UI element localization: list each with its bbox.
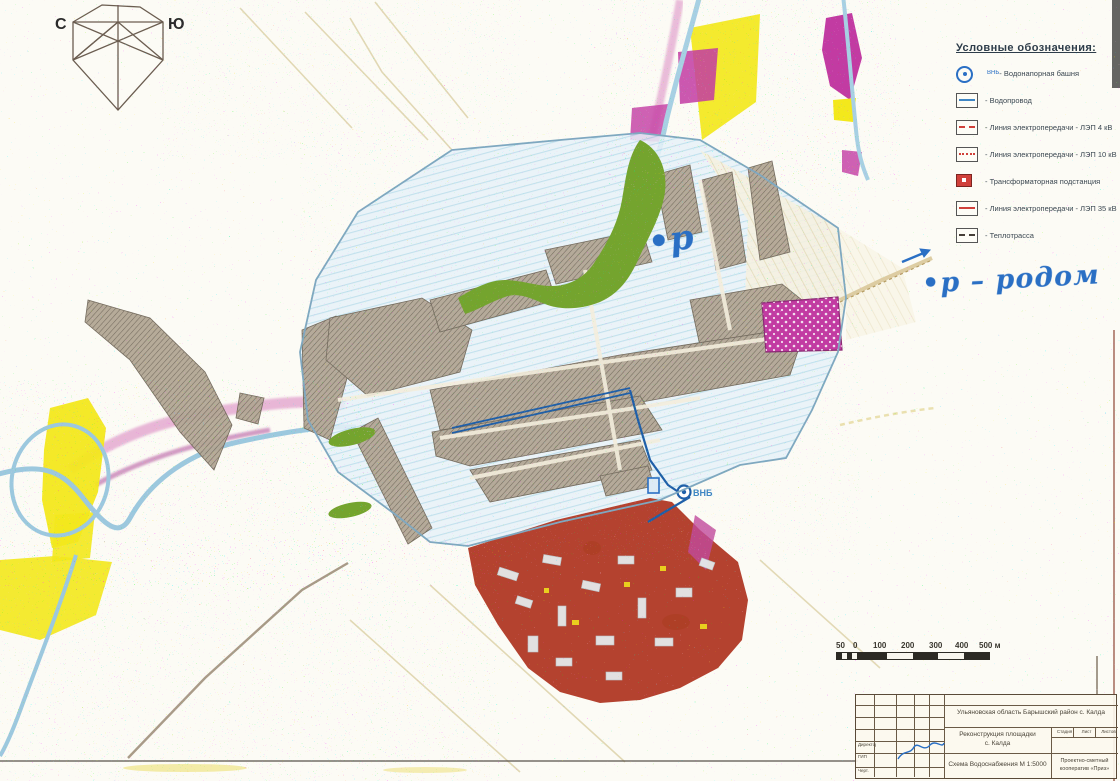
scale-bar-ruler xyxy=(836,652,990,660)
handwritten-note-map: •р xyxy=(645,217,696,263)
stamp-project-line2: с. Калда xyxy=(946,740,1049,748)
scale-label: 500 м xyxy=(979,641,1001,650)
scale-labels: 50 0 100 200 300 400 500 м xyxy=(836,641,1006,651)
legend-label: - Водонапорная башня xyxy=(999,69,1079,78)
scanned-map-sheet: ВНБ С Ю Условные xyxy=(0,0,1120,781)
sign-role: ГИП xyxy=(856,754,876,760)
water-tower-icon-badge: ВНБ xyxy=(987,70,999,76)
stamp-org-line2: кооператив «Приз» xyxy=(1053,766,1116,773)
legend-label: - Трансформаторная подстанция xyxy=(985,177,1100,186)
legend-label: - Линия электропередачи - ЛЭП 4 кВ xyxy=(985,123,1112,132)
scale-label: 200 xyxy=(901,641,914,650)
legend-title: Условные обозначения: xyxy=(956,42,1120,54)
legend-item-heat-main: - Теплотрасса xyxy=(956,227,1120,243)
legend-label: - Теплотрасса xyxy=(985,231,1034,240)
legend-label: - Водопровод xyxy=(985,96,1032,105)
scale-label: 50 xyxy=(836,641,845,650)
map-canvas: ВНБ С Ю xyxy=(0,0,1120,781)
sign-role: Черт. xyxy=(856,768,876,774)
power-line-10kv-icon xyxy=(956,147,978,162)
legend-item-water-tower: ВНБ - Водонапорная башня xyxy=(956,65,1120,81)
sign-role: Директор xyxy=(856,742,876,748)
stamp-sheet-header: Лист xyxy=(1074,729,1097,735)
legend: Условные обозначения: ВНБ - Водонапорная… xyxy=(956,42,1120,243)
legend-item-power-4kv: - Линия электропередачи - ЛЭП 4 кВ xyxy=(956,119,1120,135)
stamp-project-line1: Реконструкция площадки xyxy=(946,731,1049,739)
heat-main-icon xyxy=(956,228,978,243)
stamp-org-line1: Проектно-сметный xyxy=(1053,758,1116,765)
legend-label: - Линия электропередачи - ЛЭП 10 кВ xyxy=(985,150,1117,159)
water-line-icon xyxy=(956,93,978,108)
scale-label: 0 xyxy=(853,641,857,650)
power-line-35kv-icon xyxy=(956,201,978,216)
stamp-stage-header: Стадия xyxy=(1052,729,1075,735)
scale-bar: 50 0 100 200 300 400 500 м xyxy=(836,641,1006,660)
stamp-drawing-name: Схема Водоснабжения М 1:5000 xyxy=(946,761,1049,769)
stamp-location: Ульяновская область Барышский район с. К… xyxy=(946,709,1116,717)
legend-item-transformer: - Трансформаторная подстанция xyxy=(956,173,1120,189)
scale-label: 300 xyxy=(929,641,942,650)
power-line-4kv-icon xyxy=(956,120,978,135)
transformer-substation-icon xyxy=(956,174,978,189)
legend-item-power-35kv: - Линия электропередачи - ЛЭП 35 кВ xyxy=(956,200,1120,216)
scale-label: 100 xyxy=(873,641,886,650)
scale-label: 400 xyxy=(955,641,968,650)
scan-noise xyxy=(0,0,1120,781)
stamp-sheets-header: Листов xyxy=(1096,729,1119,735)
signature-squiggle xyxy=(896,739,946,765)
title-block: Директор ГИП Черт. Ульяновская область Б… xyxy=(855,694,1117,779)
legend-label: - Линия электропередачи - ЛЭП 35 кВ xyxy=(985,204,1117,213)
legend-item-water-line: - Водопровод xyxy=(956,92,1120,108)
water-tower-icon xyxy=(956,66,978,81)
legend-item-power-10kv: - Линия электропередачи - ЛЭП 10 кВ xyxy=(956,146,1120,162)
